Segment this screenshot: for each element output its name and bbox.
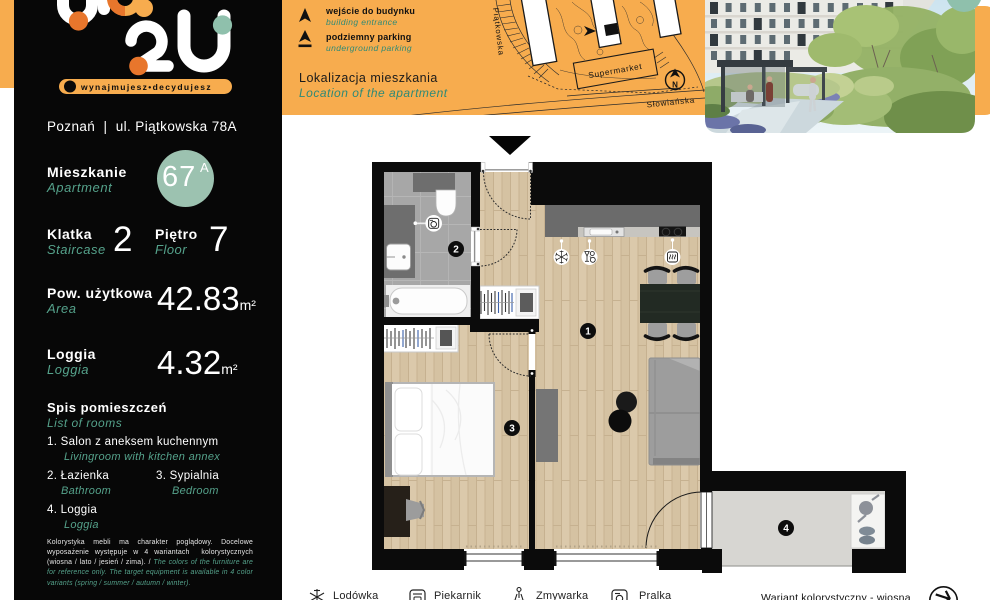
svg-text:2: 2 [453,245,459,256]
svg-text:1: 1 [585,327,591,338]
svg-text:3: 3 [509,424,515,435]
svg-text:N: N [672,81,678,90]
svg-text:wynajmujesz•decydujesz: wynajmujesz•decydujesz [80,82,212,92]
svg-text:4: 4 [783,524,789,535]
